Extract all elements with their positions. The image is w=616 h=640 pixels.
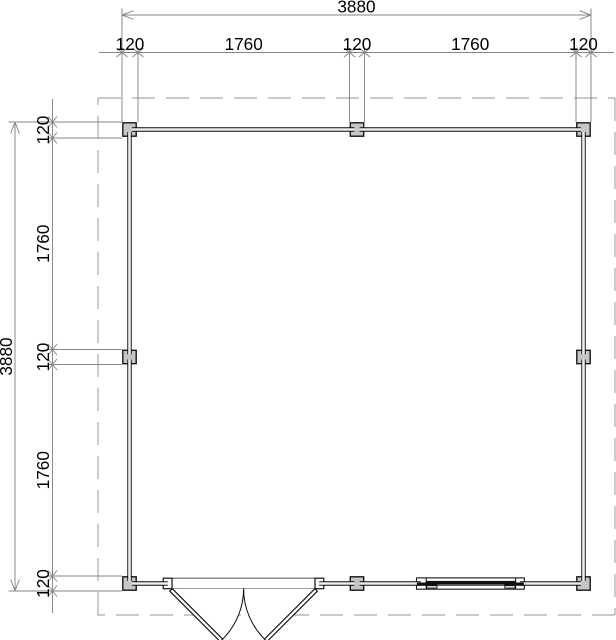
svg-text:120: 120 <box>343 34 372 54</box>
svg-text:1760: 1760 <box>33 451 53 489</box>
svg-text:3880: 3880 <box>0 337 16 375</box>
svg-text:120: 120 <box>33 343 53 372</box>
svg-text:120: 120 <box>33 569 53 598</box>
svg-text:120: 120 <box>116 34 145 54</box>
svg-text:120: 120 <box>33 116 53 145</box>
svg-text:1760: 1760 <box>451 34 489 54</box>
svg-text:3880: 3880 <box>337 0 375 17</box>
svg-text:1760: 1760 <box>33 225 53 263</box>
svg-text:1760: 1760 <box>225 34 263 54</box>
svg-text:120: 120 <box>569 34 598 54</box>
